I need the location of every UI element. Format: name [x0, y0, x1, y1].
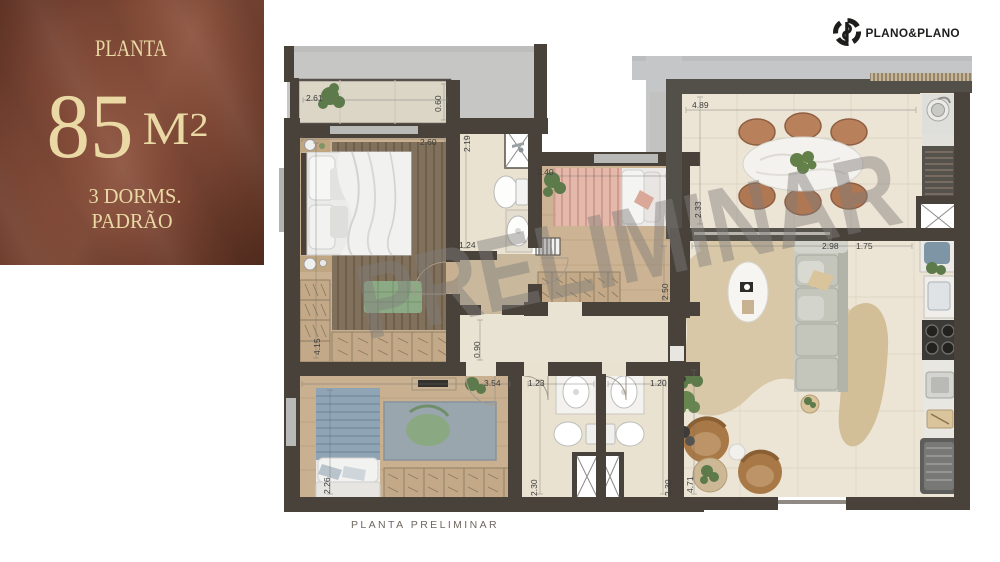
svg-text:2.98: 2.98 — [822, 241, 839, 251]
svg-text:2.19: 2.19 — [462, 135, 472, 152]
svg-text:2.30: 2.30 — [663, 479, 673, 496]
svg-text:2.50: 2.50 — [660, 283, 670, 300]
svg-text:0.90: 0.90 — [472, 341, 482, 358]
svg-text:2.40: 2.40 — [537, 167, 554, 177]
svg-text:2.61: 2.61 — [306, 93, 323, 103]
svg-text:1.20: 1.20 — [650, 378, 667, 388]
svg-text:1.23: 1.23 — [528, 378, 545, 388]
svg-text:4.15: 4.15 — [312, 338, 322, 355]
svg-text:3.54: 3.54 — [484, 378, 501, 388]
svg-text:1.75: 1.75 — [856, 241, 873, 251]
svg-text:4.89: 4.89 — [692, 100, 709, 110]
svg-text:4.71: 4.71 — [685, 476, 695, 493]
svg-text:2.60: 2.60 — [420, 137, 437, 147]
svg-text:0.60: 0.60 — [433, 95, 443, 112]
svg-text:2.30: 2.30 — [529, 479, 539, 496]
svg-text:1.24: 1.24 — [459, 240, 476, 250]
svg-text:2.33: 2.33 — [693, 201, 703, 218]
svg-text:2.26: 2.26 — [322, 477, 332, 494]
